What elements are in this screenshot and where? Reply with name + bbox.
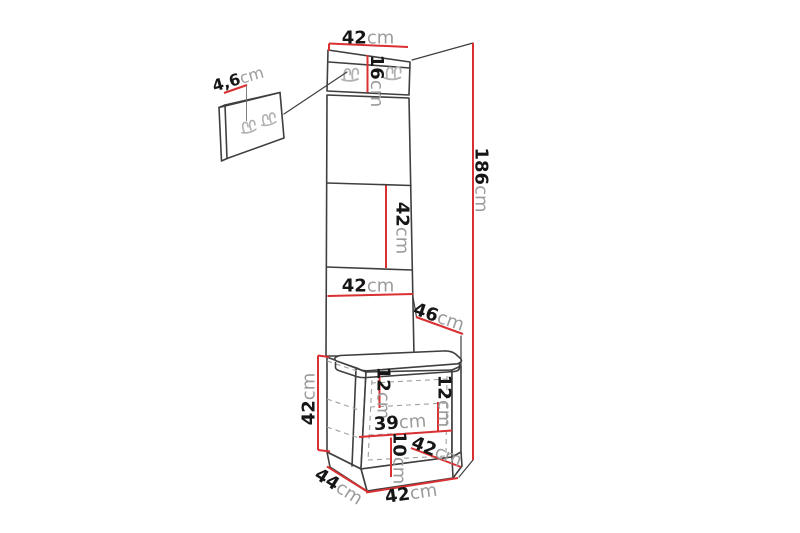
svg-text:42cm: 42cm <box>298 373 319 426</box>
svg-text:46cm: 46cm <box>411 299 467 336</box>
dim-label-seat-depth: 46cm <box>411 299 467 336</box>
dim-label-shelf-top: 12cm <box>373 367 394 420</box>
dim-label-top-width: 42cm <box>342 27 395 48</box>
svg-text:16cm: 16cm <box>366 55 387 108</box>
svg-text:12cm: 12cm <box>373 367 394 420</box>
dim-label-middle-panel-height: 42cm <box>392 202 413 255</box>
dim-label-shelf-right: 12cm <box>434 375 455 428</box>
svg-text:10cm: 10cm <box>389 432 410 485</box>
svg-text:4,6cm: 4,6cm <box>210 63 266 96</box>
furniture-dimension-diagram: 42cm 16cm 4,6cm 186cm 42cm 42cm 46cm 42c… <box>0 0 800 533</box>
dim-label-hook-detail: 4,6cm <box>210 63 266 96</box>
diagram-canvas: 42cm 16cm 4,6cm 186cm 42cm 42cm 46cm 42c… <box>0 0 800 533</box>
svg-text:12cm: 12cm <box>434 375 455 428</box>
svg-text:42cm: 42cm <box>392 202 413 255</box>
svg-text:186cm: 186cm <box>471 147 492 212</box>
svg-text:42cm: 42cm <box>342 27 395 48</box>
dim-label-panel-width: 42cm <box>342 275 395 296</box>
dim-label-total-height: 186cm <box>471 147 492 212</box>
ext-total-height-top <box>412 43 473 60</box>
dim-label-hook-panel-height: 16cm <box>366 55 387 108</box>
dim-label-shelf-bottom: 10cm <box>389 432 410 485</box>
dim-label-bench-height: 42cm <box>298 373 319 426</box>
svg-text:42cm: 42cm <box>342 275 395 296</box>
